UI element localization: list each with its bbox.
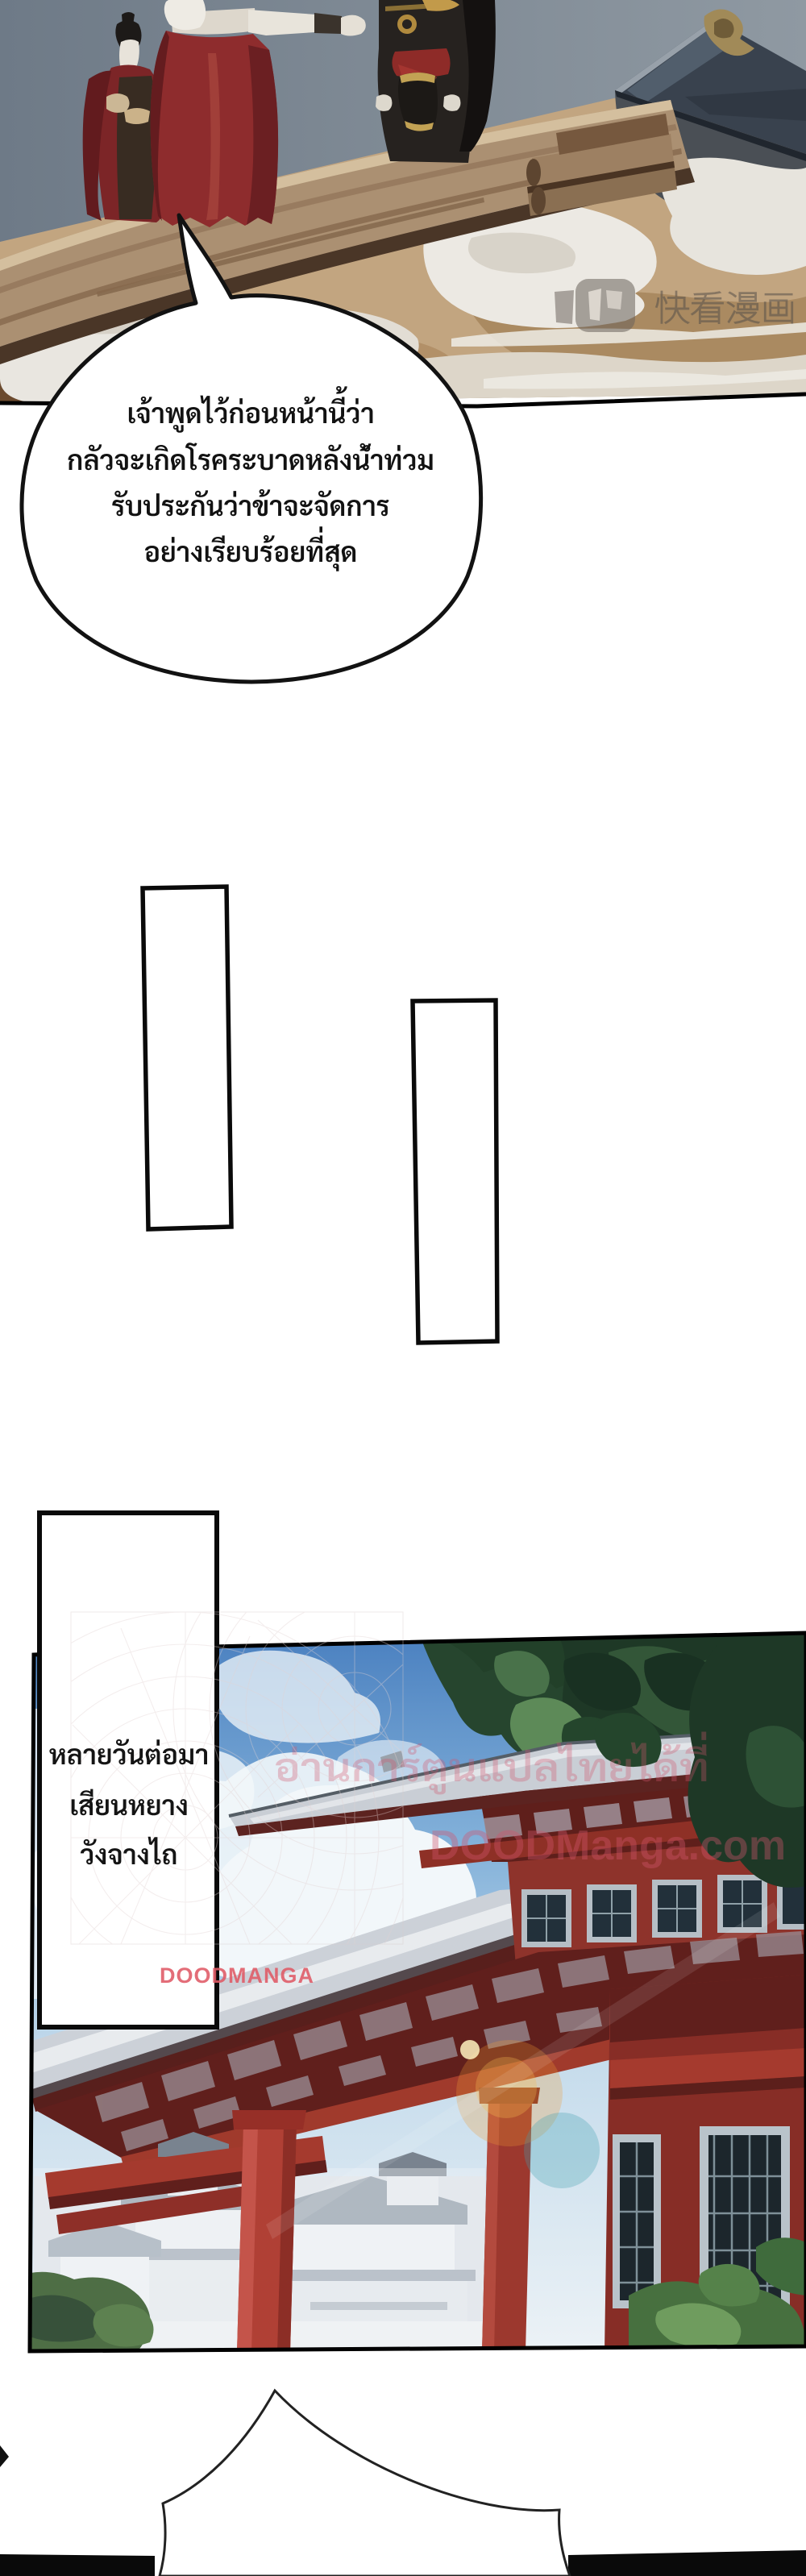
svg-text:DOODMANGA: DOODMANGA bbox=[160, 1963, 314, 1988]
svg-text:DOODManga.com: DOODManga.com bbox=[430, 1822, 786, 1869]
